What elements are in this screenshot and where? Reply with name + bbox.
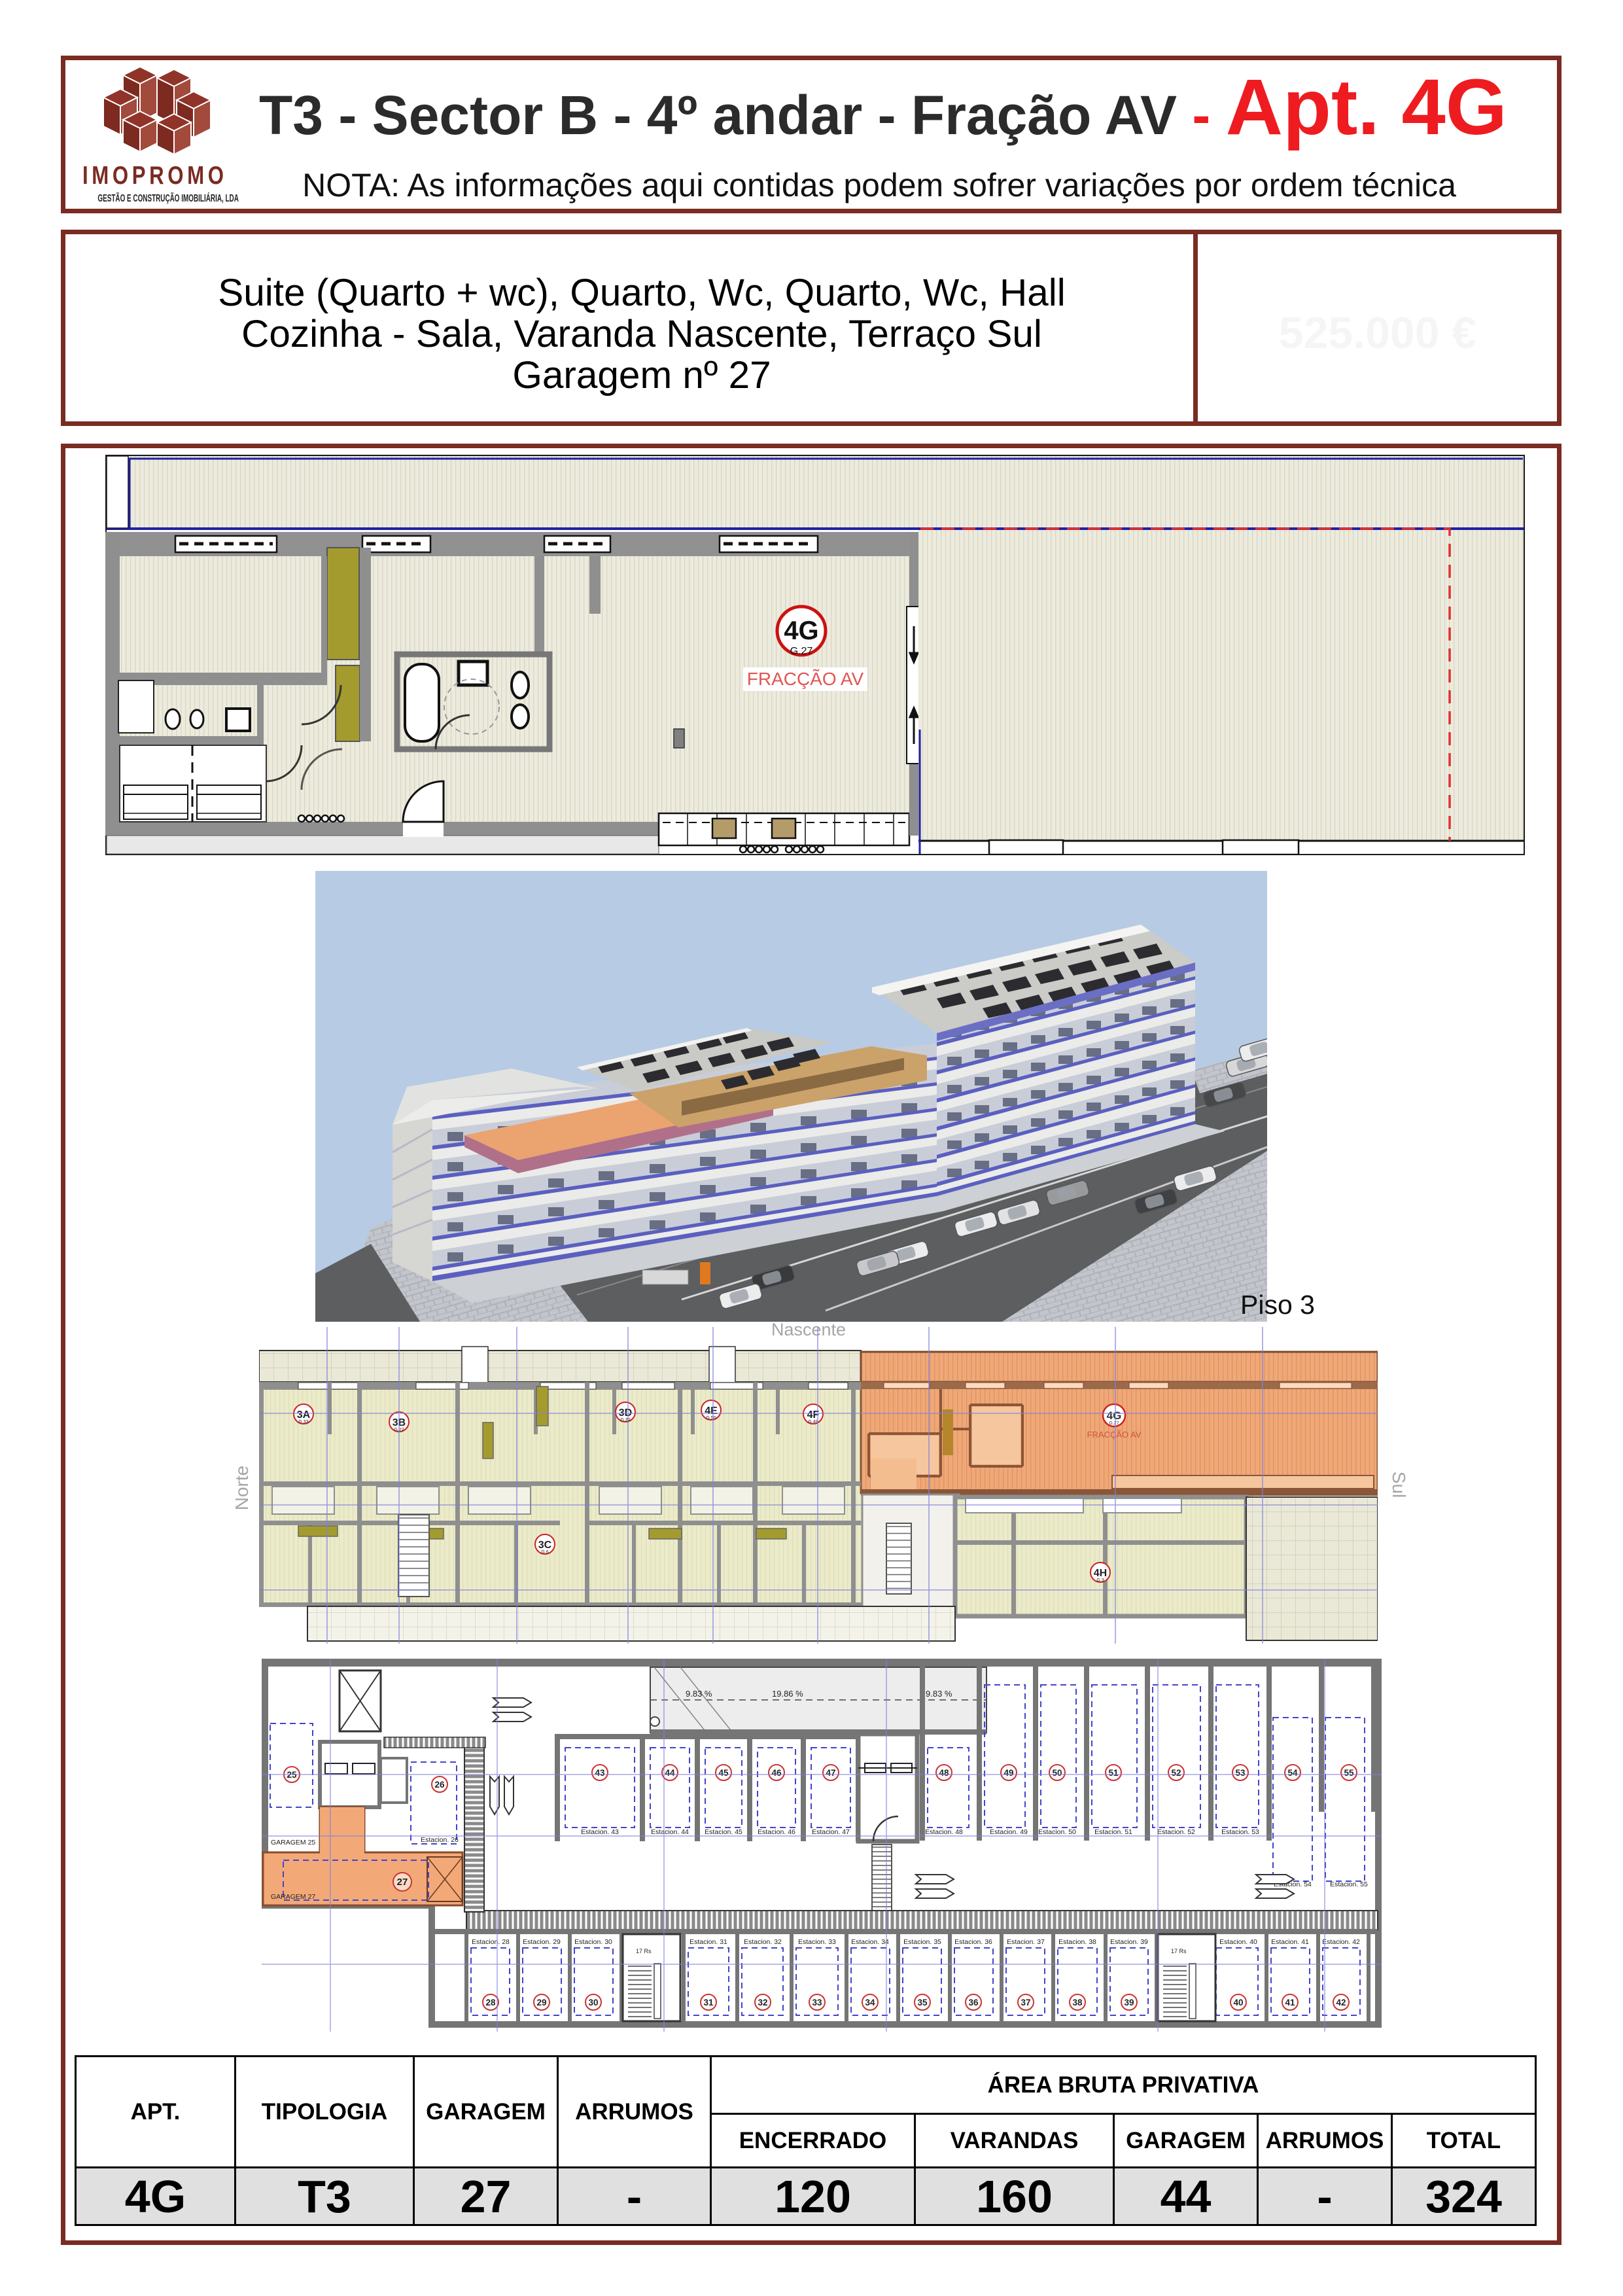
svg-text:53: 53 — [1235, 1768, 1246, 1778]
svg-text:Estacion. 51: Estacion. 51 — [1094, 1828, 1132, 1836]
svg-text:G.49: G.49 — [808, 1420, 818, 1424]
svg-text:26: 26 — [434, 1780, 445, 1790]
svg-text:4E: 4E — [705, 1405, 718, 1417]
svg-text:52: 52 — [1171, 1768, 1181, 1778]
svg-text:Estacion. 46: Estacion. 46 — [758, 1828, 795, 1836]
svg-text:Estacion. 48: Estacion. 48 — [925, 1828, 963, 1836]
svg-text:FRACÇÃO AV: FRACÇÃO AV — [747, 669, 864, 689]
svg-text:38: 38 — [1072, 1998, 1083, 2007]
svg-text:32: 32 — [758, 1998, 767, 2007]
svg-text:Estacion. 41: Estacion. 41 — [1271, 1938, 1309, 1946]
svg-text:3C: 3C — [538, 1540, 552, 1551]
svg-text:FRACÇÃO AV: FRACÇÃO AV — [1087, 1430, 1142, 1439]
svg-text:40: 40 — [1233, 1998, 1243, 2007]
svg-text:54: 54 — [1287, 1768, 1298, 1778]
svg-text:9.83 %: 9.83 % — [686, 1689, 712, 1699]
svg-text:28: 28 — [485, 1998, 496, 2007]
svg-text:Estacion. 31: Estacion. 31 — [689, 1938, 727, 1946]
svg-text:Estacion. 28: Estacion. 28 — [472, 1938, 510, 1946]
svg-text:Estacion. 38: Estacion. 38 — [1058, 1938, 1096, 1946]
svg-text:Estacion. 26: Estacion. 26 — [421, 1836, 459, 1844]
svg-text:G.50: G.50 — [706, 1416, 716, 1421]
svg-text:Estacion. 49: Estacion. 49 — [990, 1828, 1028, 1836]
svg-text:Estacion. 29: Estacion. 29 — [523, 1938, 561, 1946]
svg-text:G.33: G.33 — [298, 1420, 308, 1424]
svg-text:50: 50 — [1052, 1768, 1062, 1778]
svg-text:27: 27 — [397, 1877, 408, 1888]
svg-text:Estacion. 37: Estacion. 37 — [1007, 1938, 1045, 1946]
svg-text:19.86 %: 19.86 % — [772, 1689, 803, 1699]
svg-text:Estacion. 33: Estacion. 33 — [798, 1938, 836, 1946]
svg-text:G.3: G.3 — [1096, 1578, 1104, 1583]
svg-text:Estacion. 36: Estacion. 36 — [954, 1938, 992, 1946]
svg-text:G.6: G.6 — [541, 1550, 548, 1555]
svg-text:Estacion. 39: Estacion. 39 — [1110, 1938, 1148, 1946]
svg-text:36: 36 — [968, 1998, 979, 2007]
svg-text:Estacion. 35: Estacion. 35 — [903, 1938, 941, 1946]
svg-text:G.27: G.27 — [790, 646, 813, 657]
svg-text:Estacion. 52: Estacion. 52 — [1157, 1828, 1195, 1836]
svg-text:29: 29 — [536, 1998, 546, 2007]
svg-text:Estacion. 55: Estacion. 55 — [1330, 1881, 1368, 1888]
svg-text:Estacion. 34: Estacion. 34 — [851, 1938, 889, 1946]
svg-text:Estacion. 50: Estacion. 50 — [1038, 1828, 1076, 1836]
svg-text:Estacion. 44: Estacion. 44 — [651, 1828, 689, 1836]
svg-text:48: 48 — [939, 1768, 949, 1778]
svg-text:Estacion. 42: Estacion. 42 — [1322, 1938, 1360, 1946]
svg-text:4G: 4G — [1107, 1409, 1122, 1422]
svg-text:Estacion. 30: Estacion. 30 — [574, 1938, 612, 1946]
svg-text:GARAGEM 25: GARAGEM 25 — [271, 1839, 315, 1846]
svg-text:G.27: G.27 — [1109, 1421, 1119, 1426]
svg-text:3A: 3A — [297, 1409, 311, 1421]
svg-text:41: 41 — [1285, 1998, 1295, 2007]
svg-text:37: 37 — [1021, 1998, 1030, 2007]
svg-text:51: 51 — [1108, 1768, 1119, 1778]
svg-text:49: 49 — [1003, 1768, 1013, 1778]
svg-text:30: 30 — [588, 1998, 598, 2007]
svg-text:42: 42 — [1336, 1998, 1346, 2007]
svg-text:G.32: G.32 — [620, 1418, 630, 1422]
svg-text:43: 43 — [595, 1768, 605, 1778]
svg-text:17 Rs: 17 Rs — [1171, 1948, 1187, 1954]
svg-text:33: 33 — [812, 1998, 822, 2007]
svg-text:44: 44 — [665, 1768, 675, 1778]
svg-text:Estacion. 45: Estacion. 45 — [705, 1828, 742, 1836]
svg-text:4H: 4H — [1094, 1568, 1107, 1579]
svg-text:55: 55 — [1344, 1768, 1354, 1778]
svg-text:Estacion. 43: Estacion. 43 — [581, 1828, 619, 1836]
svg-text:GARAGEM 27: GARAGEM 27 — [271, 1893, 315, 1901]
svg-text:Estacion. 47: Estacion. 47 — [812, 1828, 850, 1836]
svg-text:Estacion. 53: Estacion. 53 — [1221, 1828, 1259, 1836]
svg-text:Estacion. 40: Estacion. 40 — [1219, 1938, 1257, 1946]
svg-text:4G: 4G — [784, 616, 818, 645]
svg-text:35: 35 — [917, 1998, 928, 2007]
svg-text:47: 47 — [826, 1768, 835, 1778]
svg-text:31: 31 — [703, 1998, 714, 2007]
svg-text:Estacion. 32: Estacion. 32 — [744, 1938, 782, 1946]
svg-text:17 Rs: 17 Rs — [636, 1948, 652, 1954]
svg-text:45: 45 — [718, 1768, 729, 1778]
svg-text:46: 46 — [771, 1768, 782, 1778]
svg-text:39: 39 — [1124, 1998, 1134, 2007]
svg-text:34: 34 — [865, 1998, 875, 2007]
svg-text:9.83 %: 9.83 % — [926, 1689, 952, 1699]
